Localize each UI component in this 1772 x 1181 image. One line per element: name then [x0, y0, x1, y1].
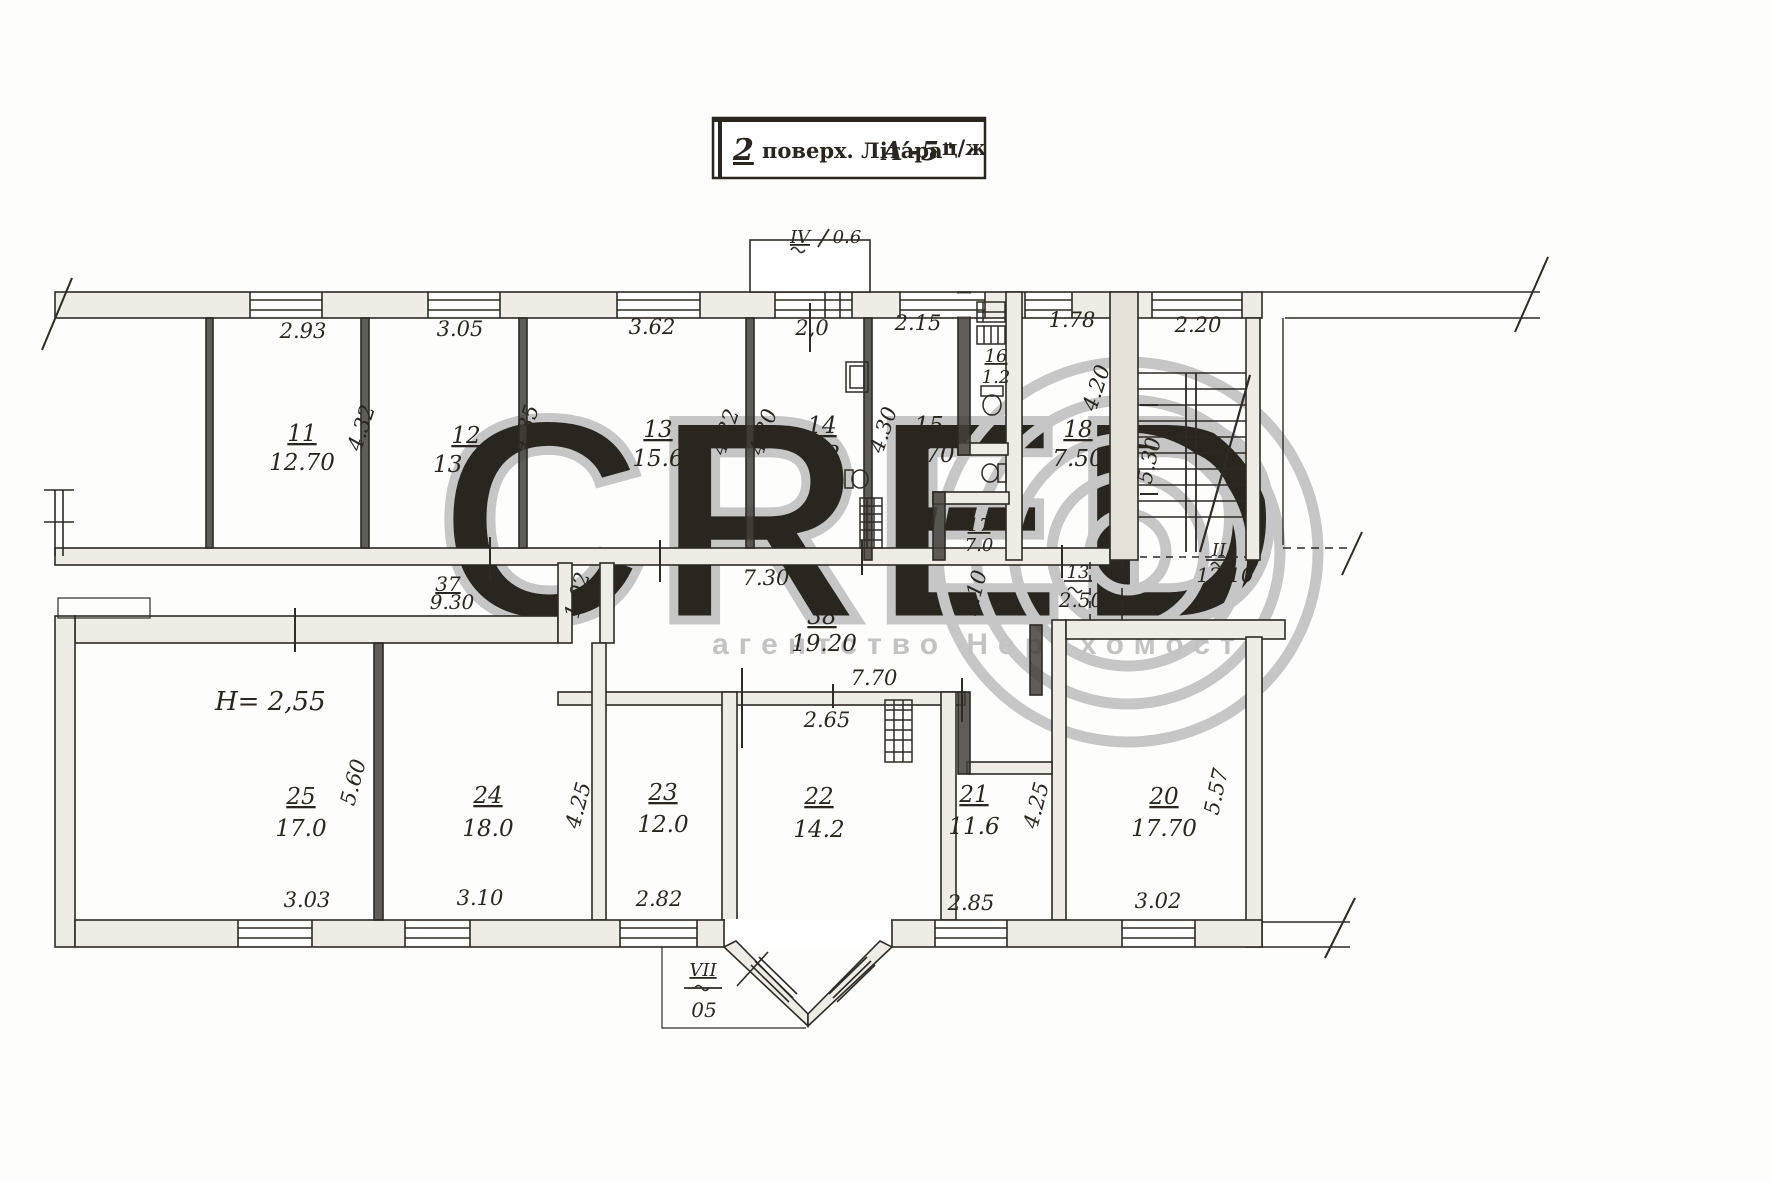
bay-glazing-right: [829, 957, 875, 1002]
wall-segment: [374, 643, 383, 920]
window: [238, 920, 312, 947]
room-14-number: 14: [807, 413, 836, 439]
room-20-area: 17.70: [1131, 816, 1197, 842]
window: [1122, 920, 1195, 947]
annex-ii-number: II: [1211, 540, 1227, 561]
room-16-number: 16: [985, 346, 1008, 367]
room-17-area: 7.0: [965, 535, 994, 556]
title-block: 2 поверх. Літара" А′-5 ц/ж: [713, 118, 986, 178]
room-11-area: 12.70: [269, 450, 335, 476]
room-13-area: 15.6: [632, 446, 683, 472]
room-20-number: 20: [1148, 784, 1178, 810]
wall-segment: [55, 548, 1110, 565]
room-17-number: 17: [968, 515, 991, 536]
window: [620, 920, 697, 947]
wall-segment: [206, 318, 213, 548]
wall-segment: [941, 692, 956, 920]
room-23-area: 12.0: [637, 812, 688, 838]
dim-2.93: 2.93: [279, 319, 327, 343]
annex-iv-number: IV: [789, 227, 812, 248]
wall-segment: [55, 616, 75, 947]
dim-3.05: 3.05: [437, 317, 484, 341]
window: [250, 292, 322, 318]
dim-7.30: 7.30: [743, 566, 790, 590]
wall-segment: [1030, 625, 1042, 695]
window: [775, 292, 852, 318]
annex-vii-number: VII: [689, 960, 717, 981]
sink-room16: [977, 326, 1005, 344]
room-22-number: 22: [803, 784, 833, 810]
wall-segment: [933, 492, 945, 560]
room-18-area: 7.50: [1052, 446, 1103, 472]
dim-2.15: 2.15: [894, 311, 942, 335]
room-21-number: 21: [958, 782, 988, 808]
bay-wall-right: [808, 941, 892, 1026]
room-16-area: 1.2: [982, 367, 1011, 388]
wall-segment: [722, 692, 737, 920]
left-notch: [44, 490, 74, 556]
wall-segment: [75, 616, 558, 643]
room-12-area: 13.30: [433, 452, 499, 478]
dim-4.32: 4.32: [342, 402, 380, 455]
dim-7.70: 7.70: [851, 666, 898, 690]
room-13-number: 13: [643, 417, 672, 443]
dim-4.25: 4.25: [560, 779, 596, 831]
dim-3.02: 3.02: [1135, 889, 1182, 913]
wall-segment: [1006, 292, 1022, 560]
dim-5.57: 5.57: [1200, 766, 1233, 817]
title-block-suffix: ц/ж: [942, 135, 986, 160]
dim-2.65: 2.65: [803, 708, 851, 732]
dim-4.25-b: 4.25: [1018, 779, 1054, 831]
wall-segment: [1246, 637, 1262, 947]
wall-segment: [558, 692, 965, 705]
annex-13-number: 13: [1067, 562, 1090, 583]
dim-2.20: 2.20: [1174, 313, 1222, 337]
stairwell-right-wall: [1246, 318, 1260, 560]
window: [405, 920, 470, 947]
room-25-area: 17.0: [275, 816, 326, 842]
room-24-number: 24: [472, 783, 502, 809]
room-25-number: 25: [285, 784, 315, 810]
dim-2.85: 2.85: [947, 891, 995, 915]
bay-opening: [725, 919, 891, 948]
room-14-area: 8.2: [804, 442, 841, 468]
ceiling-height-note: H= 2,55: [214, 687, 326, 717]
dim-3.03: 3.03: [284, 888, 331, 912]
stairwell-left-wall: [1110, 292, 1138, 560]
wall-segment: [1066, 620, 1285, 639]
room-22-area: 14.2: [793, 817, 844, 843]
dim-2.0: 2,0: [794, 316, 828, 340]
annex-vii-area: 05: [691, 998, 716, 1022]
dim-3.62: 3.62: [629, 315, 676, 339]
room-23-number: 23: [647, 780, 677, 806]
title-block-code: А′-5: [880, 137, 939, 167]
room-24-area: 18.0: [462, 816, 513, 842]
corridor-37-area: 9.30: [430, 590, 475, 614]
window: [428, 292, 500, 318]
annex-13-area: 2.50: [1058, 588, 1104, 612]
dim-1.78: 1.78: [1049, 308, 1096, 332]
wall-segment: [600, 563, 614, 643]
left-ledge-outline: [58, 598, 150, 618]
title-floor-number: 2: [732, 133, 754, 168]
room-12-number: 12: [451, 423, 480, 449]
dim-2.82: 2.82: [635, 887, 683, 911]
vent-shaft-room21: [885, 700, 912, 762]
corridor-38-number: 38: [807, 604, 836, 630]
dim-3.10: 3.10: [457, 886, 504, 910]
room-15-number: 15: [914, 413, 943, 439]
porch-outline: [662, 947, 806, 1028]
room-11-number: 11: [287, 421, 316, 447]
wall-segment: [592, 643, 606, 920]
corridor-38-area: 19.20: [791, 631, 857, 657]
window: [935, 920, 1007, 947]
room-21-area: 11.6: [948, 814, 999, 840]
wall-segment: [967, 762, 1052, 774]
room-18-number: 18: [1063, 417, 1092, 443]
room-15-area: 9.70: [903, 442, 954, 468]
dim-5.60: 5.60: [336, 756, 371, 807]
wall-segment: [1052, 620, 1066, 920]
annex-ii-area: 12.10: [1196, 563, 1254, 587]
annex-iv-area: 0.6: [833, 227, 862, 248]
wall-segment: [958, 692, 970, 774]
floor-plan-scan: CRED агентство Нерухомості 2 поверх. Літ…: [0, 0, 1772, 1181]
